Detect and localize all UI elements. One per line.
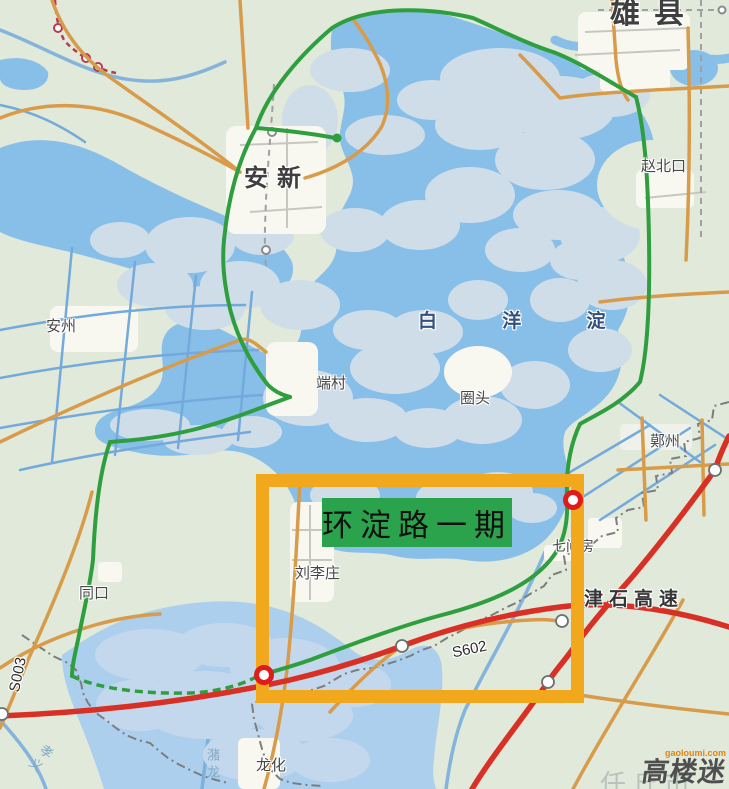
label-anzhou: 安州 [46, 315, 76, 336]
label-quantou: 圈头 [460, 387, 490, 408]
watermark: gaoloumi.com 高楼迷 [642, 749, 726, 786]
map-canvas [0, 0, 729, 789]
label-qijianfang: 七间房 [552, 536, 594, 556]
map-screenshot: 雄县 赵北口 安新 安州 白 洋 淀 端村 圈头 鄚州 七间房 刘李庄 同口 龙… [0, 0, 729, 789]
watermark-logo: 高楼迷 [640, 759, 728, 786]
label-maozhou: 鄚州 [650, 430, 680, 451]
highlight-label-box: 环淀路一期 [322, 498, 512, 547]
label-liulizhuang: 刘李庄 [295, 562, 340, 583]
label-xiongxian: 雄县 [610, 0, 698, 32]
label-anxin: 安新 [244, 158, 310, 193]
label-zhulong-river: 潴龙 [203, 748, 222, 782]
label-duancun: 端村 [316, 372, 346, 393]
label-jinshi-expressway: 津石高速 [584, 584, 684, 611]
label-tongkou: 同口 [79, 582, 109, 603]
label-zhaobeikou: 赵北口 [641, 155, 686, 176]
highlight-label-text: 环淀路一期 [322, 500, 512, 545]
label-baiyangdian: 白 洋 淀 [418, 306, 636, 333]
label-longhua: 龙化 [256, 754, 286, 775]
